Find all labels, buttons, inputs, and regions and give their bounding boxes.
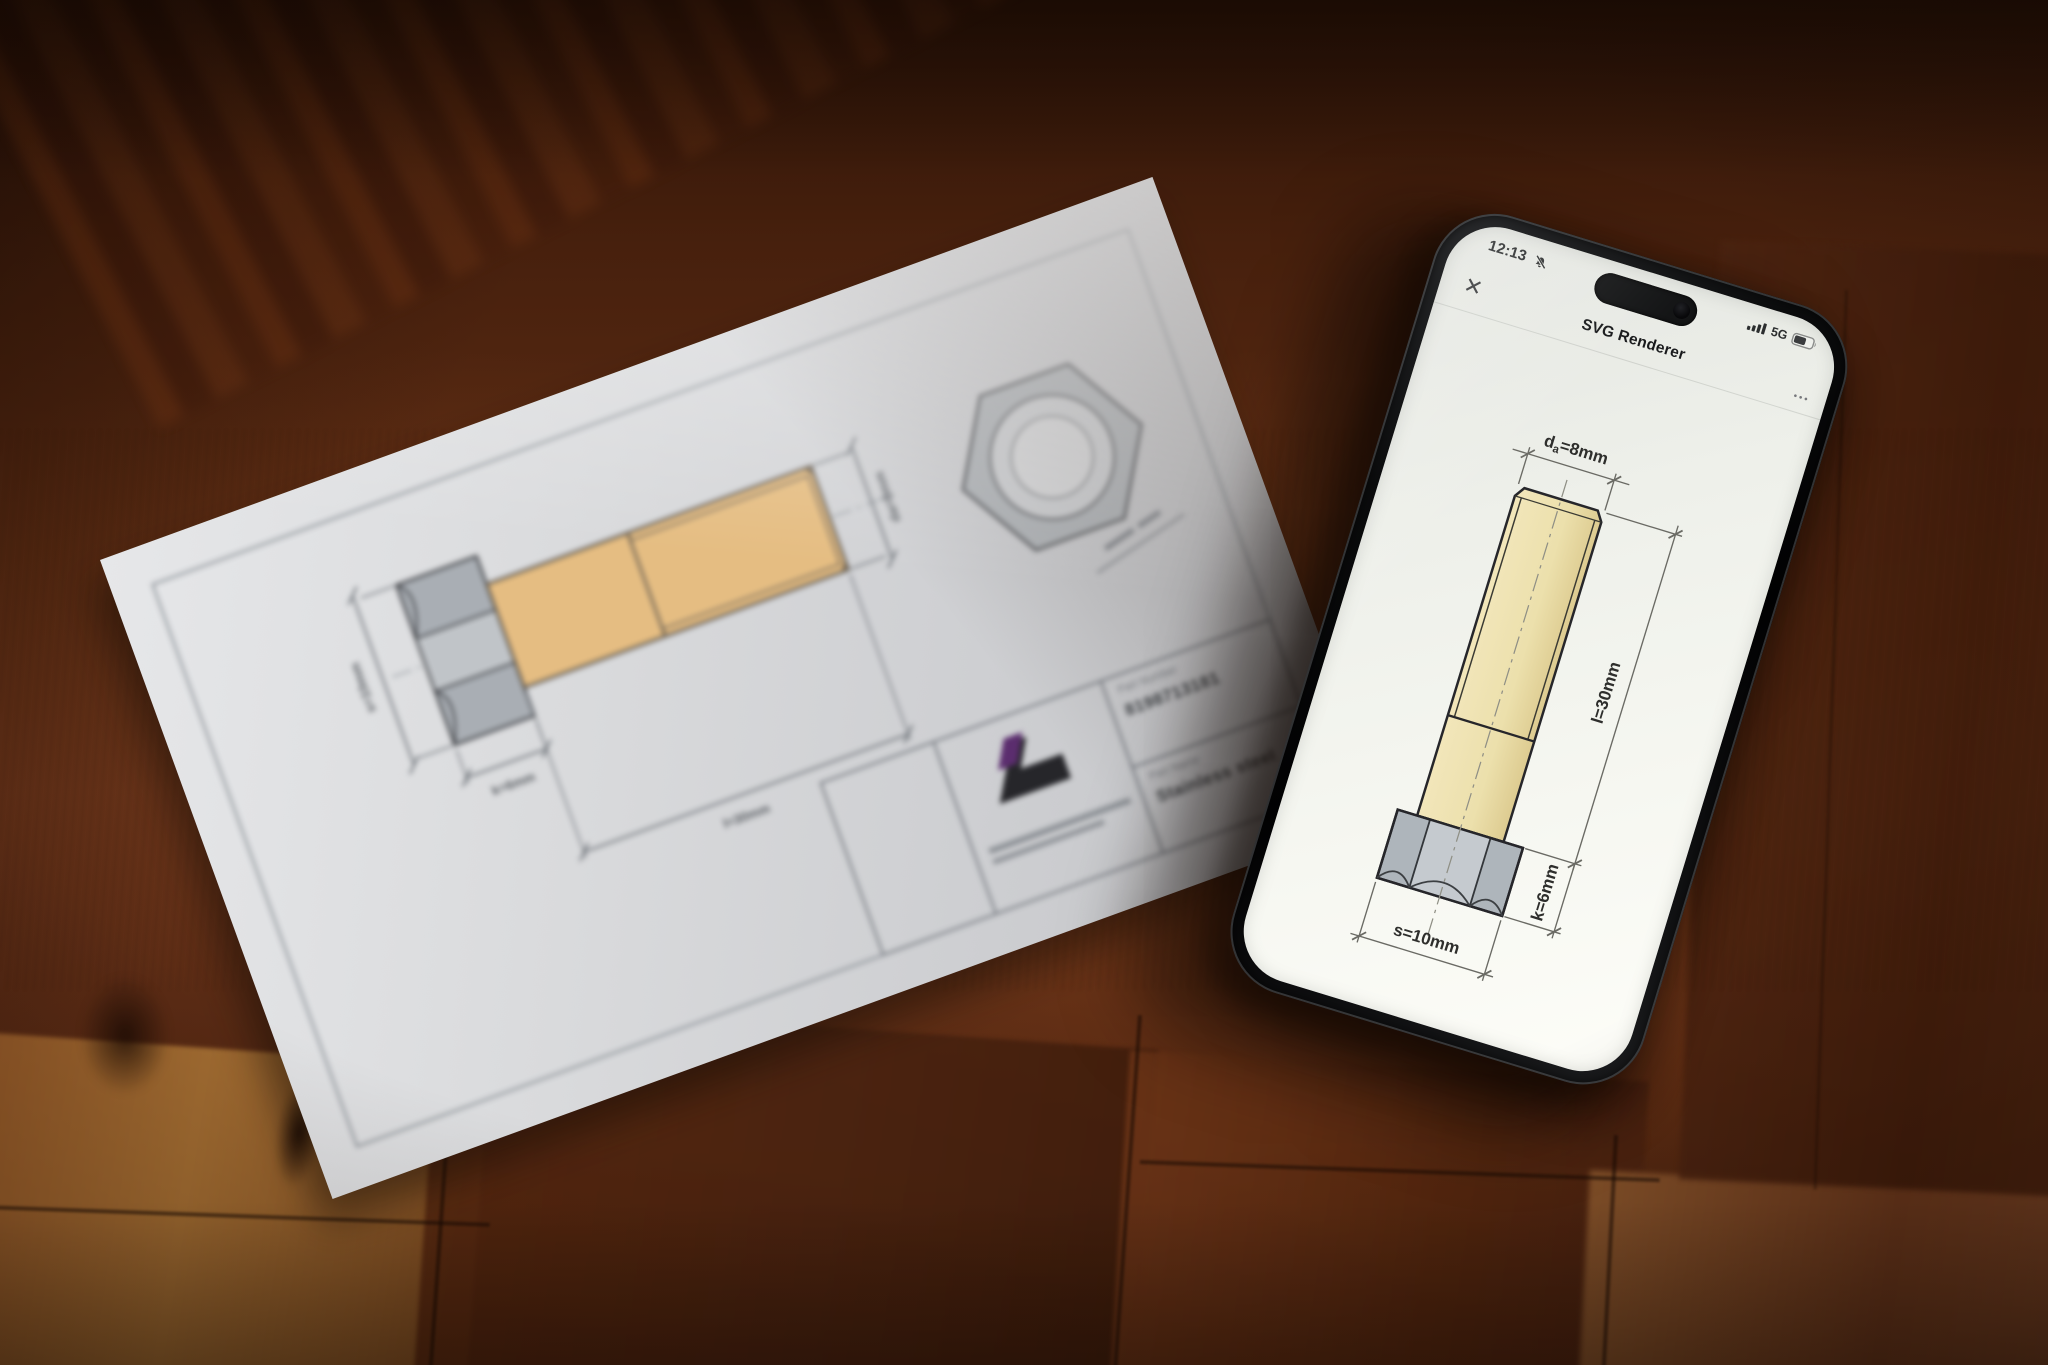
- dim-diameter-label: da=8mm: [1541, 431, 1610, 471]
- wood-plank: [1107, 1050, 1649, 1365]
- signal-bars-icon: [1747, 318, 1769, 335]
- status-bar-right: 5G: [1746, 317, 1820, 352]
- battery-icon: [1790, 331, 1820, 351]
- dim-length-label: l=30mm: [1588, 659, 1625, 725]
- wood-plank: [1574, 1170, 2048, 1365]
- bell-slash-icon: [1532, 254, 1548, 270]
- dim-across-flats-label: s=10mm: [1391, 920, 1462, 958]
- clock: 12:13: [1486, 237, 1529, 265]
- photo-scene: s=10mm k=6mm l=30mm: [0, 0, 2048, 1365]
- network-type: 5G: [1769, 324, 1789, 342]
- bolt-shaft: [1417, 486, 1604, 842]
- front-camera: [1671, 300, 1692, 321]
- dim-head-height-label: k=6mm: [1527, 862, 1562, 924]
- wood-knot: [80, 975, 170, 1095]
